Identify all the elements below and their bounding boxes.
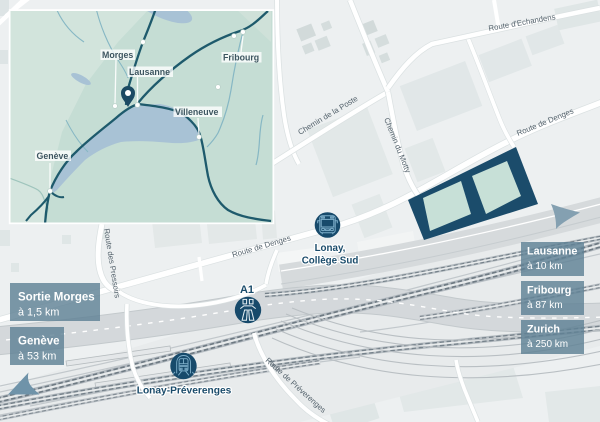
svg-text:Sortie Morges: Sortie Morges [18,292,95,304]
svg-text:A1: A1 [240,284,254,296]
svg-text:Morges: Morges [102,50,133,60]
svg-text:Lausanne: Lausanne [129,67,170,77]
svg-text:Fribourg: Fribourg [527,285,571,297]
svg-text:à 1,5 km: à 1,5 km [18,307,59,319]
svg-text:Lonay,: Lonay, [315,243,346,254]
svg-text:Zurich: Zurich [527,324,560,336]
svg-text:Lonay-Préverenges: Lonay-Préverenges [137,386,232,397]
svg-text:Collège Sud: Collège Sud [302,256,359,267]
svg-text:à 53 km: à 53 km [18,351,56,363]
svg-text:à 87 km: à 87 km [527,300,563,311]
svg-text:Villeneuve: Villeneuve [175,107,218,117]
svg-text:à 10 km: à 10 km [527,261,563,272]
svg-text:à 250 km: à 250 km [527,339,568,350]
svg-text:Fribourg: Fribourg [223,53,259,63]
svg-text:Genève: Genève [18,336,60,348]
svg-text:Lausanne: Lausanne [527,246,577,258]
svg-text:Genève: Genève [37,151,69,161]
